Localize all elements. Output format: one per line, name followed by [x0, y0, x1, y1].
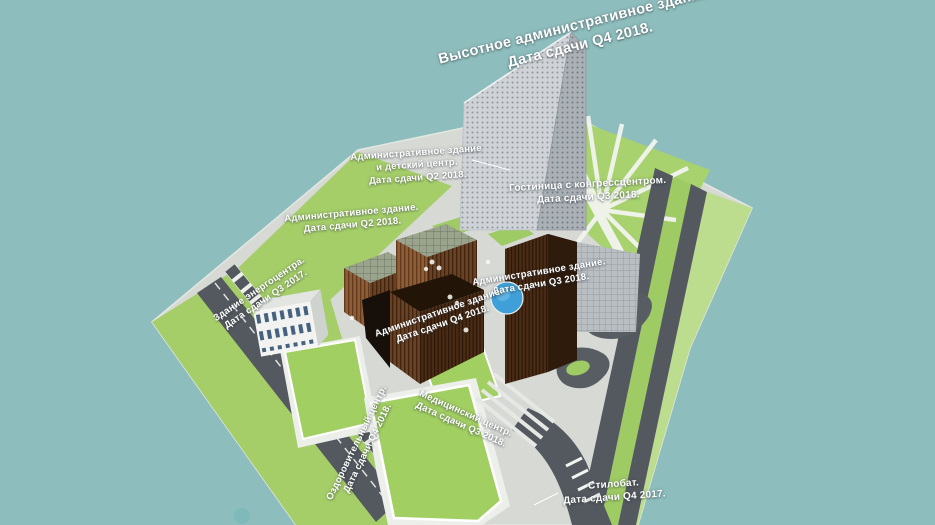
render-canvas: Высотное административное здание. Дата с…	[0, 0, 935, 525]
